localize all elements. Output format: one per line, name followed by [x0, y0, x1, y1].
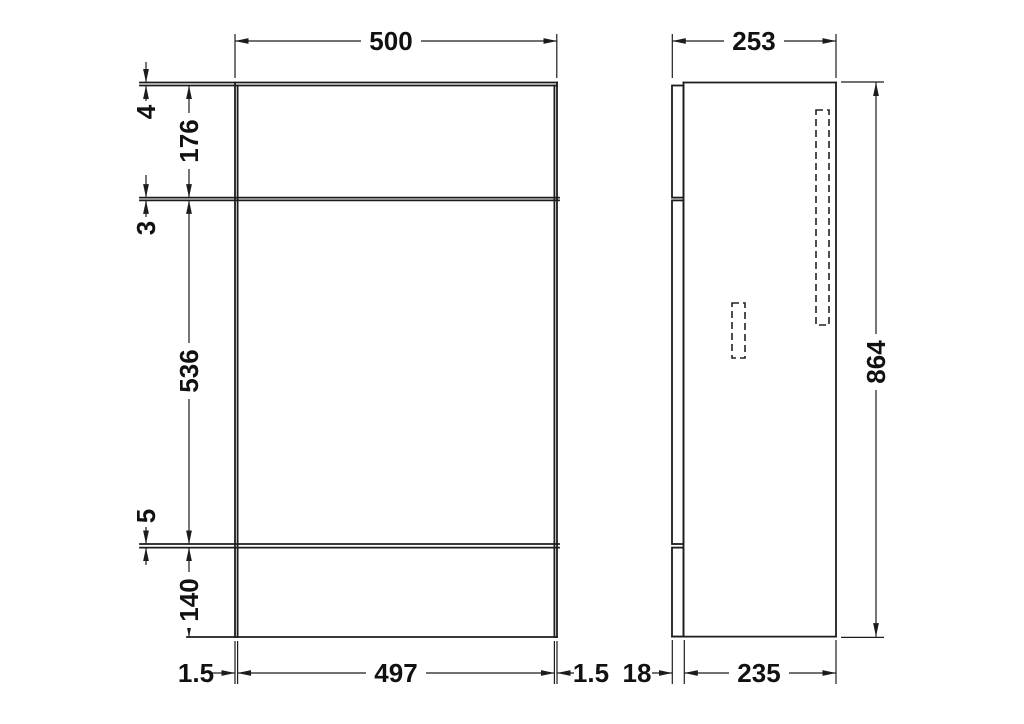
side-view-dimensions: 253 864 18 235	[623, 26, 891, 688]
dim-label-top-panel-height: 176	[174, 119, 204, 162]
hidden-detail-slot-small	[732, 303, 745, 358]
dim-label-bottom-gap: 5	[131, 509, 161, 523]
side-top-panel-edge	[672, 86, 684, 198]
dim-label-panel-width: 497	[374, 658, 417, 688]
dim-label-side-height: 864	[861, 340, 891, 384]
side-door-edge	[672, 200, 684, 544]
side-view-outline	[672, 83, 836, 637]
dim-label-plinth-height: 140	[174, 578, 204, 621]
dim-label-door-thickness: 18	[623, 658, 652, 688]
dim-label-door-height: 536	[174, 349, 204, 392]
dim-label-side-depth: 253	[732, 26, 775, 56]
dim-label-body-depth: 235	[737, 658, 780, 688]
hidden-detail-slot-tall	[816, 110, 829, 325]
dim-label-top-gap: 3	[131, 221, 161, 235]
side-view: 253 864 18 235	[623, 26, 891, 688]
front-view: 500 4 176 3 536	[131, 26, 609, 688]
dim-label-front-width: 500	[369, 26, 412, 56]
dim-label-left-inset: 1.5	[178, 658, 214, 688]
dim-label-rim-thickness: 4	[131, 104, 161, 119]
dimension-drawing-canvas: 500 4 176 3 536	[0, 0, 1024, 724]
technical-drawing-page: 500 4 176 3 536	[0, 0, 1024, 724]
front-view-dimensions: 500 4 176 3 536	[131, 26, 609, 688]
side-plinth-edge	[672, 548, 684, 637]
dim-label-right-inset: 1.5	[573, 658, 609, 688]
